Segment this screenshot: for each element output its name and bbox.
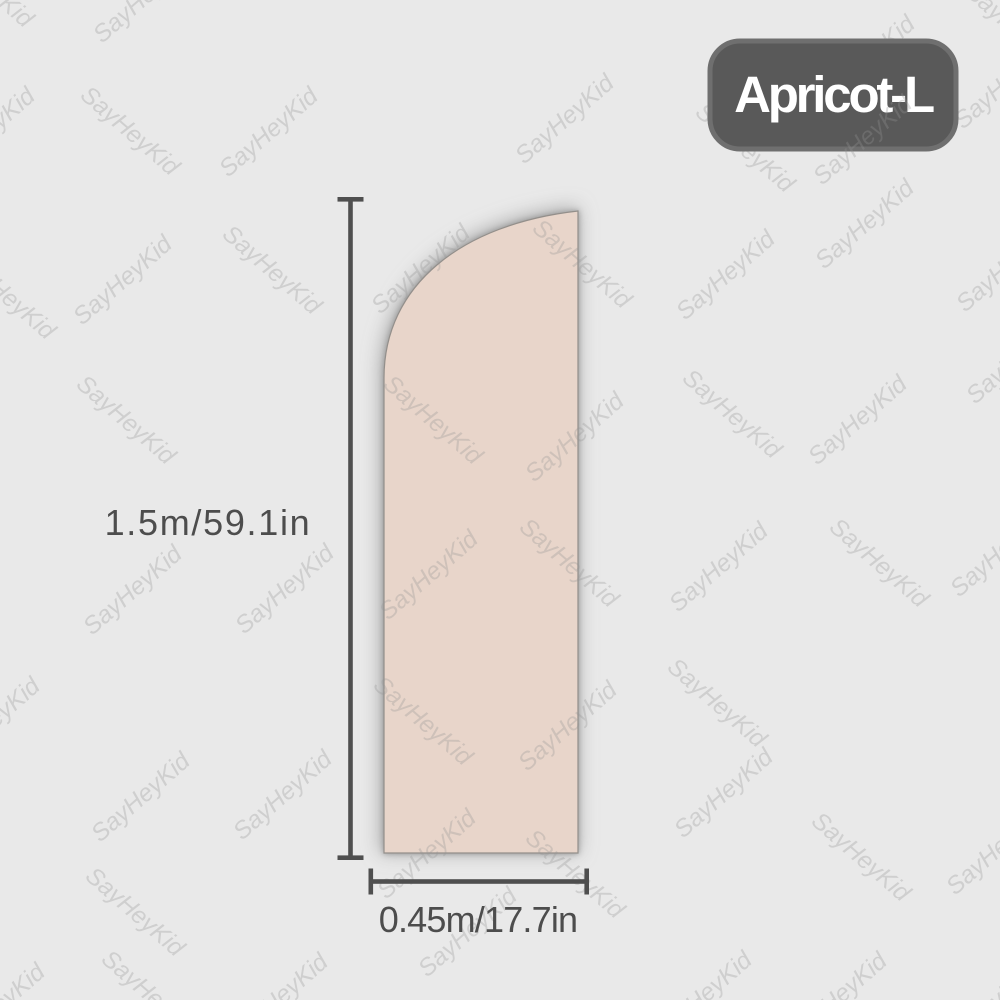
svg-text:0.45m/17.7in: 0.45m/17.7in [379, 899, 578, 940]
svg-text:1.5m/59.1in: 1.5m/59.1in [105, 502, 312, 543]
